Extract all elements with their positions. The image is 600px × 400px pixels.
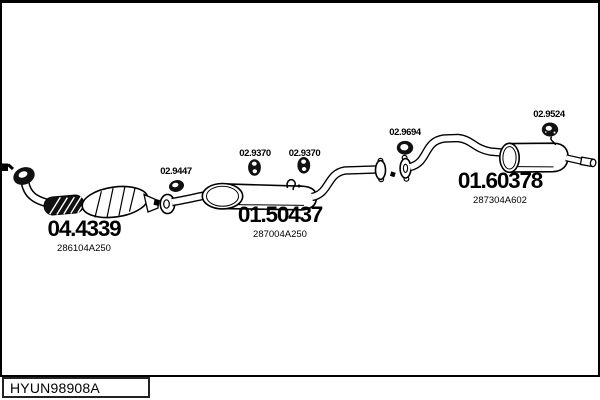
rubber-ring-icon-9694 <box>397 141 413 155</box>
part-ref: 286104A250 <box>48 244 121 254</box>
part-ref: 287004A250 <box>238 230 322 240</box>
part-label-hanger-mid: 02.9370 <box>289 149 321 159</box>
frame-tick-mark <box>2 164 9 172</box>
part-label-gasket: 02.9447 <box>160 167 192 177</box>
diagram-reference-box: HYUN98908A <box>2 377 150 398</box>
rubber-ring-icon-9524 <box>542 123 558 146</box>
part-label-hanger-front: 02.9370 <box>239 149 271 159</box>
part-code: 01.50437 <box>238 204 322 227</box>
part-label-middle-silencer: 01.50437 287004A250 <box>238 204 322 239</box>
part-label-ring-9694: 02.9694 <box>389 128 421 138</box>
flex-pipe-icon <box>43 194 84 215</box>
flange-joint-icon <box>376 155 411 181</box>
rear-inlet-pipe <box>410 138 506 167</box>
part-code: 01.60378 <box>458 170 542 193</box>
exhaust-diagram-page: 02.9447 02.9370 02.9370 02.9694 02.9524 … <box>0 0 600 400</box>
part-code: 04.4339 <box>48 218 121 241</box>
front-flange-icon <box>8 164 37 188</box>
part-label-rear-silencer: 01.60378 287304A602 <box>458 170 542 205</box>
rubber-hanger-icon-mid <box>297 157 310 174</box>
diagram-reference-code: HYUN98908A <box>10 381 100 395</box>
gasket-ring-icon <box>168 179 186 194</box>
part-ref: 287304A602 <box>458 196 542 206</box>
part-label-ring-9524: 02.9524 <box>533 110 565 120</box>
rubber-hanger-icon-front <box>248 159 261 176</box>
middle-outlet-pipe <box>312 170 376 198</box>
part-label-catalyst: 04.4339 286104A250 <box>48 218 121 253</box>
tail-pipe-icon <box>566 157 596 167</box>
